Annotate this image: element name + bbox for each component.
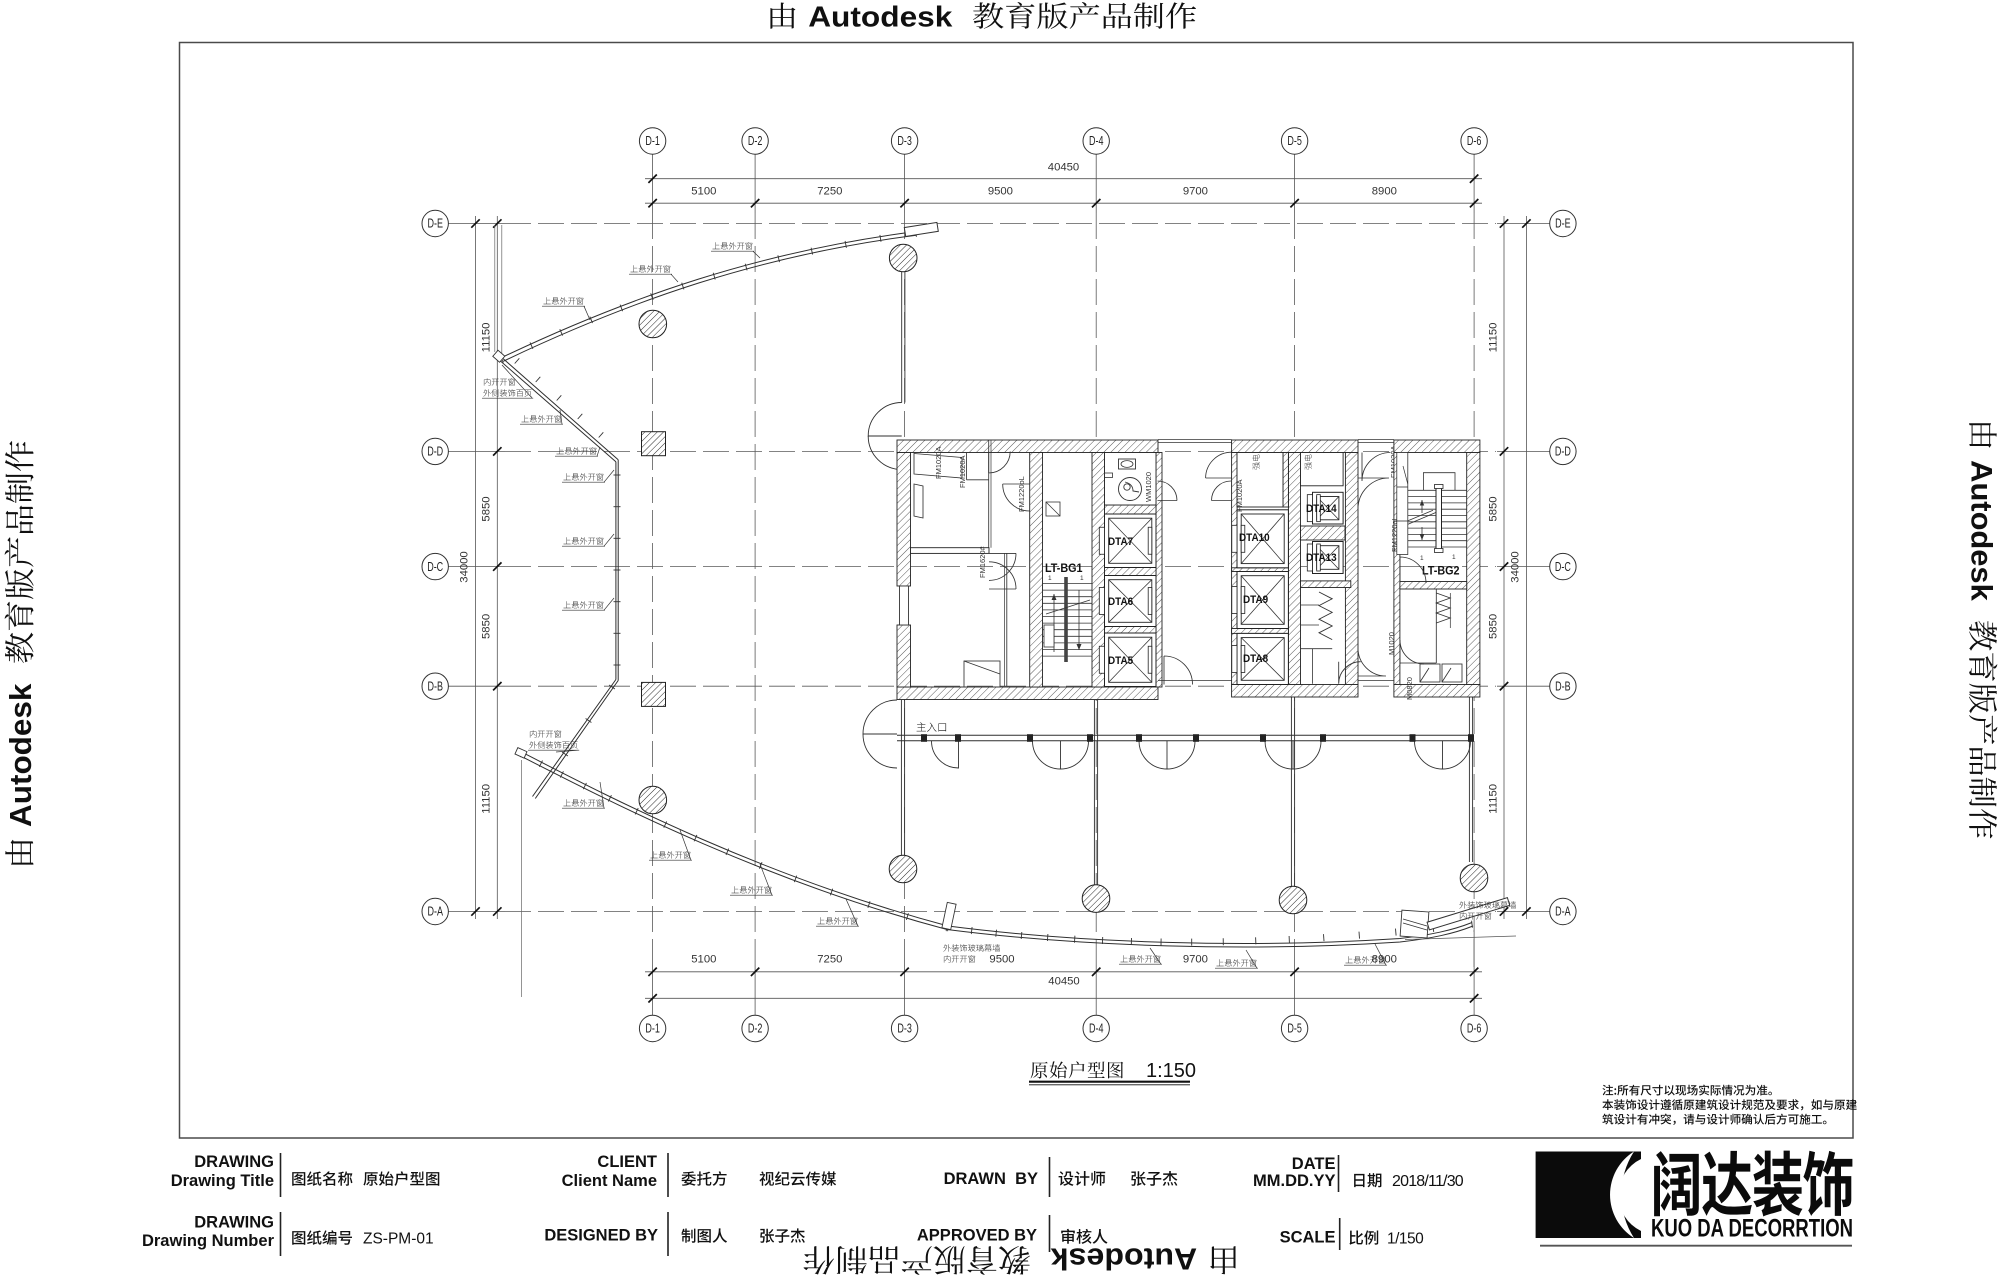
- svg-text:D-1: D-1: [645, 135, 659, 149]
- svg-text:FM1220oL: FM1220oL: [1390, 516, 1399, 552]
- svg-text:Drawing Title: Drawing Title: [171, 1172, 274, 1190]
- svg-text:7250: 7250: [817, 953, 842, 965]
- svg-text:1/150: 1/150: [1387, 1231, 1424, 1248]
- svg-text:DTA8: DTA8: [1243, 654, 1268, 666]
- svg-text:KUO DA DECORRTION: KUO DA DECORRTION: [1651, 1215, 1853, 1243]
- svg-text:8900: 8900: [1372, 186, 1397, 198]
- svg-text:11150: 11150: [1488, 784, 1500, 814]
- svg-text:DESIGNED BY: DESIGNED BY: [544, 1227, 658, 1245]
- svg-text:Client Name: Client Name: [562, 1172, 657, 1190]
- svg-text:DTA14: DTA14: [1306, 504, 1337, 516]
- svg-text:D-4: D-4: [1089, 135, 1103, 149]
- svg-text:11150: 11150: [1488, 323, 1500, 353]
- svg-text:34000: 34000: [1510, 551, 1522, 582]
- svg-text:11150: 11150: [481, 784, 493, 814]
- svg-text:DTA6: DTA6: [1108, 597, 1133, 609]
- svg-text:MM.DD.YY: MM.DD.YY: [1253, 1172, 1336, 1190]
- svg-text:FM1220oL: FM1220oL: [1017, 476, 1026, 512]
- svg-text:D-4: D-4: [1089, 1022, 1103, 1036]
- svg-text:D-1: D-1: [645, 1022, 659, 1036]
- svg-text:DRAWN BY: DRAWN BY: [944, 1170, 1038, 1188]
- svg-text:DRAWING: DRAWING: [194, 1153, 274, 1171]
- svg-text:WM1020: WM1020: [1144, 472, 1153, 502]
- svg-text:D-B: D-B: [1555, 680, 1570, 694]
- svg-text:1: 1: [1048, 575, 1052, 582]
- svg-text:DTA7: DTA7: [1108, 537, 1133, 549]
- svg-text:D-2: D-2: [748, 135, 762, 149]
- svg-text:M0820: M0820: [1405, 677, 1414, 700]
- svg-text:D-D: D-D: [1555, 445, 1571, 459]
- svg-text:DATE: DATE: [1292, 1155, 1336, 1173]
- svg-text:11150: 11150: [481, 323, 493, 353]
- svg-text:DTA10: DTA10: [1239, 533, 1270, 545]
- svg-text:D-2: D-2: [748, 1022, 762, 1036]
- svg-text:SCALE: SCALE: [1280, 1229, 1336, 1247]
- svg-text:CLIENT: CLIENT: [597, 1153, 657, 1171]
- svg-text:9500: 9500: [989, 953, 1014, 965]
- svg-text:5850: 5850: [1488, 496, 1500, 521]
- svg-text:DTA13: DTA13: [1306, 553, 1337, 565]
- svg-text:D-3: D-3: [897, 1022, 911, 1036]
- svg-text:D-A: D-A: [1555, 905, 1571, 919]
- svg-text:D-C: D-C: [427, 560, 443, 574]
- svg-text:D-B: D-B: [427, 680, 442, 694]
- svg-text:D-3: D-3: [897, 135, 911, 149]
- svg-text:D-D: D-D: [427, 445, 443, 459]
- svg-text:DRAWING: DRAWING: [194, 1214, 274, 1232]
- svg-text:5100: 5100: [691, 186, 716, 198]
- svg-text:40450: 40450: [1048, 162, 1079, 174]
- svg-text:7250: 7250: [817, 186, 842, 198]
- svg-text:FM1020A: FM1020A: [934, 446, 943, 479]
- svg-text:ZS-PM-01: ZS-PM-01: [363, 1231, 434, 1248]
- svg-text:FM1020A: FM1020A: [958, 455, 967, 488]
- svg-text:1: 1: [1452, 554, 1456, 561]
- svg-text:DTA5: DTA5: [1108, 656, 1133, 668]
- svg-text:9700: 9700: [1183, 953, 1208, 965]
- svg-text:APPROVED BY: APPROVED BY: [917, 1227, 1037, 1245]
- svg-text:M1020: M1020: [1387, 632, 1396, 655]
- svg-text:LT-BG1: LT-BG1: [1045, 563, 1083, 576]
- svg-text:DTA9: DTA9: [1243, 595, 1268, 607]
- svg-text:34000: 34000: [459, 551, 471, 582]
- svg-text:9700: 9700: [1183, 186, 1208, 198]
- svg-text:D-C: D-C: [1555, 560, 1571, 574]
- svg-text:D-E: D-E: [1555, 217, 1570, 231]
- svg-text:5850: 5850: [481, 496, 493, 521]
- svg-text:40450: 40450: [1048, 976, 1079, 988]
- svg-text:1: 1: [1080, 575, 1084, 582]
- svg-text:2018/11/30: 2018/11/30: [1392, 1173, 1464, 1190]
- svg-text:D-5: D-5: [1287, 1022, 1301, 1036]
- svg-text:D-E: D-E: [427, 217, 442, 231]
- svg-text:1: 1: [1420, 555, 1424, 562]
- svg-text:D-A: D-A: [427, 905, 443, 919]
- svg-text:5850: 5850: [1488, 614, 1500, 639]
- svg-text:FM1620#: FM1620#: [978, 545, 987, 578]
- svg-text:FM1020A: FM1020A: [1235, 479, 1244, 512]
- svg-text:5850: 5850: [481, 614, 493, 639]
- svg-text:Drawing Number: Drawing Number: [142, 1232, 275, 1250]
- svg-text:D-6: D-6: [1467, 1022, 1481, 1036]
- svg-text:9500: 9500: [988, 186, 1013, 198]
- svg-text:5100: 5100: [691, 953, 716, 965]
- svg-text:LT-BG2: LT-BG2: [1422, 565, 1460, 578]
- svg-text:D-5: D-5: [1287, 135, 1301, 149]
- svg-text:1:150: 1:150: [1146, 1060, 1196, 1082]
- svg-text:D-6: D-6: [1467, 135, 1481, 149]
